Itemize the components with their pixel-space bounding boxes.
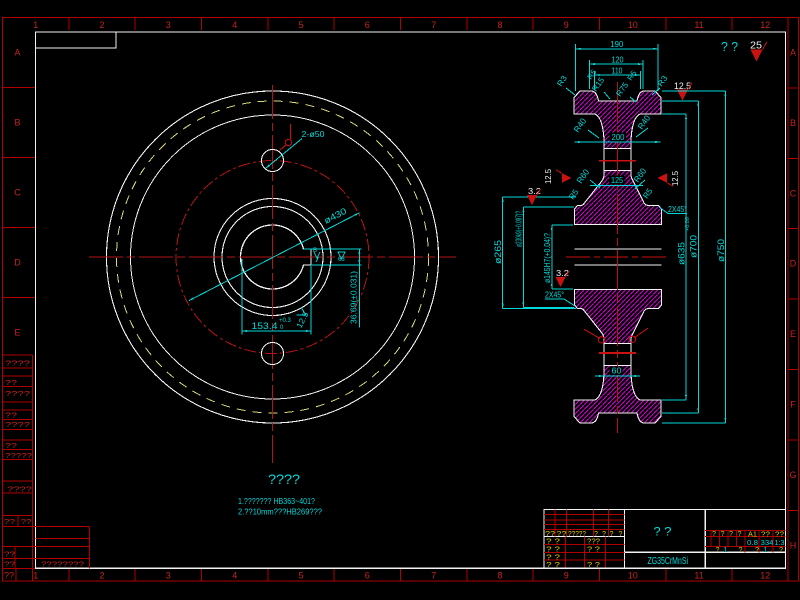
svg-text:?????: ????? (5, 451, 32, 460)
svg-text:ø700: ø700 (689, 235, 699, 258)
svg-text:ø265: ø265 (493, 240, 503, 264)
svg-text:??: ?? (5, 411, 17, 420)
svg-text:60: 60 (612, 366, 622, 376)
svg-text:63: 63 (338, 257, 345, 263)
svg-text:ø145H7(+0.04)?: ø145H7(+0.04)? (542, 233, 552, 283)
svg-text:1:3: 1:3 (775, 538, 785, 547)
svg-text:?????: ????? (568, 531, 586, 538)
svg-text:???: ??? (587, 539, 600, 546)
svg-text:C: C (790, 188, 797, 198)
svg-text:????: ???? (5, 389, 30, 398)
svg-text:?: ? (712, 531, 716, 538)
svg-text:????????: ???????? (41, 560, 84, 569)
svg-text:2: 2 (99, 20, 104, 30)
svg-text:? ?: ? ? (654, 525, 672, 539)
svg-text:?: ? (721, 531, 725, 538)
svg-text:? ?: ? ? (546, 562, 560, 569)
svg-text:8: 8 (497, 571, 502, 581)
svg-text:A: A (790, 48, 796, 58)
svg-text:??: ?? (4, 517, 15, 526)
svg-text:B: B (14, 118, 20, 128)
svg-text:E: E (790, 329, 796, 339)
svg-text:B: B (790, 118, 796, 128)
svg-text:?: ? (594, 531, 598, 538)
svg-text:6: 6 (365, 571, 370, 581)
svg-text:?: ? (779, 547, 783, 554)
svg-text:ø230k9(+0.097)?: ø230k9(+0.097)? (514, 211, 524, 247)
svg-text:A: A (14, 48, 20, 58)
svg-text:B: B (313, 248, 317, 254)
svg-text:2X45°: 2X45° (545, 291, 564, 300)
svg-text:4: 4 (232, 20, 237, 30)
svg-text:G: G (789, 470, 796, 480)
svg-text:2.??10mm???HB269???: 2.??10mm???HB269??? (238, 508, 322, 517)
svg-text:ø635: ø635 (677, 242, 687, 265)
svg-text:9: 9 (564, 571, 569, 581)
svg-text:??: ?? (21, 517, 32, 526)
svg-text:1.??????? HB363~401?: 1.??????? HB363~401? (238, 497, 315, 506)
svg-text:12.5: 12.5 (670, 171, 680, 186)
svg-text:7: 7 (431, 571, 436, 581)
svg-text:?: ? (755, 547, 759, 554)
svg-text:153.4: 153.4 (252, 321, 278, 331)
svg-text:D: D (790, 259, 797, 269)
svg-text:110: 110 (612, 65, 623, 75)
svg-text:????: ???? (5, 420, 30, 429)
svg-text:F: F (790, 400, 796, 410)
svg-text:2-ø50: 2-ø50 (302, 129, 325, 139)
svg-text:9: 9 (564, 20, 569, 30)
svg-text:E: E (14, 328, 20, 338)
svg-text:D: D (14, 258, 21, 268)
svg-text:?: ? (716, 547, 720, 554)
svg-text:??: ?? (4, 560, 15, 569)
svg-text:?: ? (739, 547, 743, 554)
svg-text:6: 6 (365, 20, 370, 30)
svg-text:? ?: ? ? (587, 562, 600, 569)
svg-text:12: 12 (760, 571, 770, 581)
svg-text:??: ?? (5, 441, 17, 450)
svg-text:5: 5 (298, 571, 303, 581)
svg-text:+0.3: +0.3 (279, 318, 292, 324)
svg-text:0.8: 0.8 (747, 538, 758, 547)
svg-text:200: 200 (612, 132, 625, 142)
svg-text:10: 10 (628, 571, 638, 581)
svg-text:?: ? (729, 531, 733, 538)
svg-text:?: ? (619, 531, 623, 538)
svg-text:4: 4 (232, 571, 237, 581)
svg-text:10: 10 (628, 20, 638, 30)
svg-text:? ?: ? ? (546, 555, 560, 562)
svg-text:????: ???? (7, 485, 32, 494)
svg-text:? ?: ? ? (546, 539, 560, 546)
svg-text:11: 11 (694, 571, 703, 581)
svg-text:?: ? (610, 531, 614, 538)
svg-text:??: ?? (5, 378, 17, 387)
svg-text:1: 1 (33, 571, 38, 581)
svg-text:? ?: ? ? (721, 39, 738, 54)
svg-text:ø750: ø750 (716, 239, 726, 262)
svg-text:?: ? (738, 531, 742, 538)
svg-text:1: 1 (724, 547, 728, 554)
svg-text:ZG35CrMnSi: ZG35CrMnSi (648, 556, 689, 567)
svg-text:1: 1 (764, 547, 768, 554)
svg-text:120: 120 (612, 54, 624, 64)
svg-text:11: 11 (694, 20, 703, 30)
svg-text:5: 5 (298, 20, 303, 30)
svg-text:? ?: ? ? (587, 547, 600, 554)
svg-text:8: 8 (497, 20, 502, 30)
svg-text:7: 7 (431, 20, 436, 30)
svg-text:????: ???? (5, 359, 30, 368)
svg-text:??: ?? (4, 550, 15, 559)
svg-text:2: 2 (99, 571, 104, 581)
svg-text:3: 3 (166, 20, 171, 30)
svg-text:2X45°: 2X45° (668, 205, 687, 214)
svg-text:??: ?? (545, 531, 555, 538)
svg-text:36.69(±0.031): 36.69(±0.031) (350, 271, 359, 324)
svg-text:12: 12 (760, 20, 770, 30)
svg-text:334: 334 (761, 538, 774, 547)
svg-text:????: ???? (268, 471, 300, 487)
svg-text:3: 3 (166, 571, 171, 581)
svg-text:190: 190 (610, 39, 623, 49)
svg-text:+0.09: +0.09 (685, 217, 691, 231)
svg-text:??: ?? (4, 571, 14, 581)
svg-text:? ?: ? ? (546, 547, 560, 554)
svg-text:H: H (790, 540, 797, 550)
svg-text:12.5: 12.5 (543, 169, 553, 184)
svg-text:1: 1 (33, 20, 38, 30)
svg-text:125: 125 (611, 175, 623, 185)
svg-text:C: C (14, 188, 21, 198)
